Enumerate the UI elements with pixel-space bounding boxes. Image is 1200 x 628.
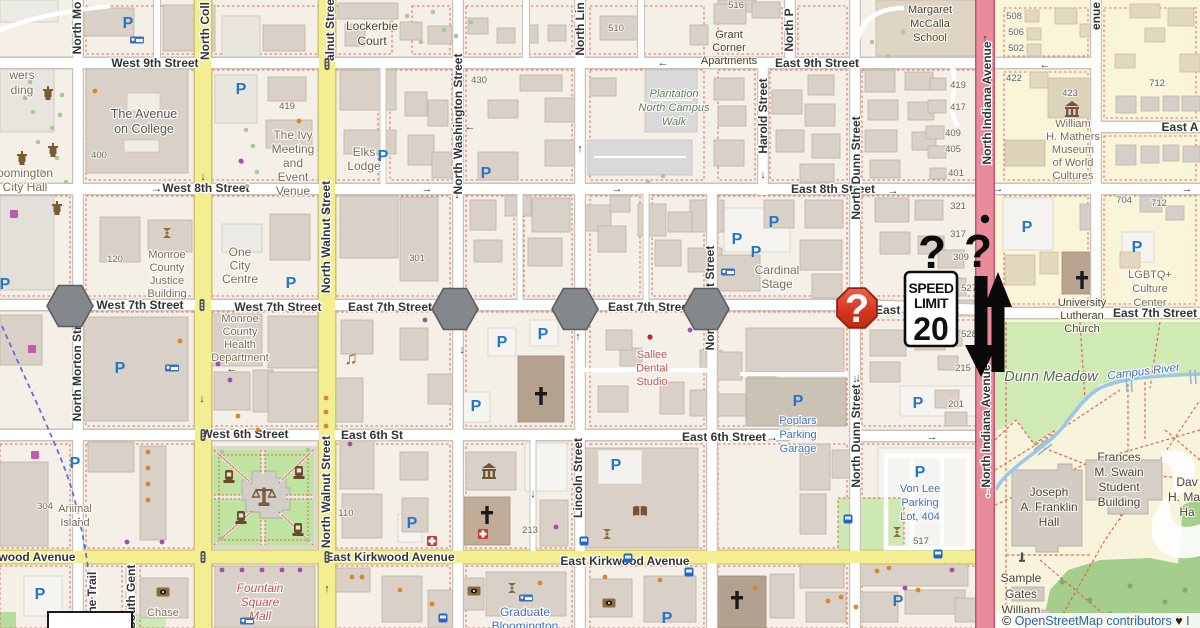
- svg-text:Lincoln Street: Lincoln Street: [571, 438, 585, 518]
- svg-text:Corner: Corner: [712, 42, 746, 54]
- svg-text:→: →: [927, 431, 938, 443]
- svg-text:Event: Event: [278, 170, 309, 184]
- svg-text:321: 321: [950, 201, 966, 212]
- svg-text:→West 8th Street: →West 8th Street: [150, 181, 249, 195]
- svg-text:North Coll: North Coll: [198, 2, 212, 60]
- svg-text:↑: ↑: [324, 583, 330, 595]
- svg-text:Lutheran: Lutheran: [1060, 310, 1103, 322]
- svg-text:P: P: [115, 360, 126, 377]
- svg-text:West 6th Street: West 6th Street: [201, 427, 288, 441]
- svg-text:516: 516: [728, 0, 744, 11]
- svg-text:Plantation: Plantation: [650, 88, 699, 100]
- svg-text:405: 405: [945, 144, 961, 155]
- svg-text:Studio: Studio: [636, 376, 667, 388]
- svg-text:of World: of World: [1053, 157, 1094, 169]
- svg-text:Lot, 404: Lot, 404: [900, 511, 940, 523]
- svg-text:→: →: [888, 185, 899, 197]
- svg-text:P: P: [732, 231, 743, 248]
- svg-text:P: P: [1022, 219, 1033, 236]
- svg-text:↓: ↓: [852, 373, 858, 385]
- svg-text:LGBTQ+: LGBTQ+: [1128, 269, 1172, 281]
- svg-text:Harold Street: Harold Street: [756, 78, 770, 153]
- svg-text:Margaret: Margaret: [908, 4, 952, 16]
- svg-text:H. Max: H. Max: [1168, 490, 1200, 504]
- svg-text:←: ←: [1040, 59, 1051, 71]
- svg-text:♫: ♫: [344, 348, 358, 368]
- svg-text:P: P: [35, 586, 46, 603]
- svg-text:301: 301: [409, 253, 425, 264]
- svg-text:Animal: Animal: [58, 503, 92, 515]
- svg-text:North P: North P: [782, 8, 796, 51]
- svg-text:Center: Center: [1133, 297, 1166, 309]
- svg-text:Stage: Stage: [761, 277, 793, 291]
- svg-text:North Walnut Street: North Walnut Street: [319, 436, 333, 548]
- svg-text:↑: ↑: [577, 143, 583, 155]
- svg-text:Cultures: Cultures: [1053, 170, 1094, 182]
- svg-text:SPEED: SPEED: [909, 280, 954, 296]
- svg-text:↑: ↑: [575, 331, 581, 343]
- svg-text:North Dunn Street←: North Dunn Street←: [849, 372, 863, 487]
- svg-text:Dental: Dental: [636, 363, 668, 375]
- svg-text:Von Lee: Von Lee: [900, 483, 940, 495]
- svg-text:M. Swain: M. Swain: [1094, 465, 1143, 479]
- svg-text:506: 506: [1008, 27, 1024, 38]
- svg-text:West 9th Street: West 9th Street: [111, 56, 198, 70]
- svg-text:City Hall: City Hall: [3, 180, 48, 194]
- svg-text:Museum: Museum: [1052, 144, 1094, 156]
- svg-text:County: County: [150, 262, 185, 274]
- svg-text:P: P: [471, 398, 482, 415]
- svg-text:LIMIT: LIMIT: [914, 295, 949, 311]
- svg-text:William: William: [1055, 118, 1090, 130]
- svg-text:517: 517: [913, 536, 929, 547]
- svg-text:Church: Church: [1064, 323, 1099, 335]
- svg-text:↓: ↓: [760, 169, 766, 181]
- svg-text:Poplars: Poplars: [779, 415, 817, 427]
- svg-text:120: 120: [107, 254, 123, 265]
- svg-text:Hall: Hall: [1039, 515, 1060, 529]
- svg-text:wood Avenue: wood Avenue: [0, 550, 76, 564]
- svg-text:East 7th Street: East 7th Street: [348, 300, 432, 314]
- svg-text:Graduate: Graduate: [500, 605, 550, 619]
- svg-text:Frances: Frances: [1097, 450, 1140, 464]
- svg-text:Lodge: Lodge: [347, 159, 381, 173]
- svg-text:P: P: [538, 326, 549, 343]
- svg-text:Lockerbie: Lockerbie: [346, 19, 398, 33]
- svg-text:North Campus: North Campus: [639, 102, 710, 114]
- svg-text:East 9th Street: East 9th Street: [775, 56, 859, 70]
- svg-text:20: 20: [913, 311, 949, 347]
- svg-text:Sallee: Sallee: [637, 349, 668, 361]
- svg-text:enue: enue: [1089, 2, 1103, 30]
- svg-text:P: P: [913, 395, 924, 412]
- svg-text:?: ?: [845, 287, 869, 331]
- svg-text:Meeting: Meeting: [272, 142, 315, 156]
- svg-text:Department: Department: [211, 352, 268, 364]
- svg-text:P: P: [497, 334, 508, 351]
- svg-text:712: 712: [1151, 198, 1167, 209]
- svg-text:P: P: [0, 276, 11, 293]
- svg-text:430: 430: [471, 75, 487, 86]
- svg-text:P: P: [611, 457, 622, 474]
- svg-text:201: 201: [948, 399, 964, 410]
- svg-text:P: P: [70, 455, 81, 472]
- svg-text:→: →: [422, 183, 433, 195]
- svg-text:↑: ↑: [982, 33, 988, 45]
- svg-text:↑: ↑: [324, 206, 330, 218]
- svg-text:409: 409: [945, 128, 961, 139]
- svg-text:Island: Island: [60, 517, 89, 529]
- svg-text:City: City: [230, 259, 251, 273]
- svg-text:P: P: [286, 275, 297, 292]
- svg-text:P: P: [751, 244, 762, 261]
- svg-text:P: P: [662, 610, 673, 627]
- svg-text:704: 704: [1116, 195, 1132, 206]
- svg-text:West 7th Street: West 7th Street: [96, 298, 183, 312]
- svg-text:Chase: Chase: [147, 607, 179, 619]
- svg-text:Elks: Elks: [353, 145, 376, 159]
- svg-text:East 7th Street: East 7th Street: [608, 300, 692, 314]
- svg-text:North Washington Street: North Washington Street: [451, 54, 465, 195]
- svg-text:Ha: Ha: [1179, 505, 1195, 519]
- svg-text:Cardinal: Cardinal: [755, 263, 800, 277]
- svg-text:Sample: Sample: [1001, 571, 1042, 585]
- svg-text:East 6th Street→: East 6th Street→: [682, 430, 778, 444]
- svg-text:←: ←: [658, 57, 669, 69]
- svg-text:↓: ↓: [530, 488, 536, 500]
- svg-text:↓: ↓: [454, 189, 460, 201]
- svg-text:P: P: [481, 165, 492, 182]
- svg-text:The Ivy: The Ivy: [273, 128, 312, 142]
- svg-text:P: P: [893, 593, 904, 610]
- svg-text:East 6th St: East 6th St: [341, 428, 403, 442]
- svg-text:West 7th Street: West 7th Street: [234, 300, 321, 314]
- svg-text:110: 110: [338, 508, 353, 519]
- svg-text:oomington: oomington: [0, 166, 53, 180]
- svg-text:Venue: Venue: [276, 184, 310, 198]
- svg-text:North Dunn Street: North Dunn Street: [849, 116, 863, 219]
- svg-text:←: ←: [465, 121, 476, 133]
- svg-text:P: P: [915, 464, 926, 481]
- svg-text:Garage: Garage: [780, 443, 817, 455]
- svg-text:502: 502: [1008, 43, 1024, 54]
- svg-text:Fountain: Fountain: [237, 581, 284, 595]
- svg-text:←: ←: [227, 363, 238, 375]
- svg-text:North Mo: North Mo: [70, 2, 84, 55]
- svg-text:East A: East A: [1162, 120, 1199, 134]
- svg-text:County: County: [223, 326, 258, 338]
- svg-text:McCalla: McCalla: [910, 18, 951, 30]
- svg-text:P: P: [123, 15, 134, 32]
- svg-text:School: School: [913, 32, 947, 44]
- svg-text:© OpenStreetMap contributors ♥: © OpenStreetMap contributors ♥ I: [1002, 614, 1190, 628]
- svg-text:Walk: Walk: [662, 116, 687, 128]
- svg-text:P: P: [793, 393, 804, 410]
- svg-text:The Avenue: The Avenue: [111, 107, 178, 121]
- svg-text:419: 419: [950, 80, 966, 91]
- svg-text:East Kirkwood Avenue: East Kirkwood Avenue: [325, 550, 454, 564]
- svg-text:Gates: Gates: [1005, 587, 1037, 601]
- svg-text:?: ?: [964, 225, 992, 277]
- svg-text:400: 400: [91, 150, 107, 161]
- svg-text:University: University: [1058, 297, 1107, 309]
- svg-text:P: P: [407, 515, 418, 532]
- svg-text:Dunn Meadow: Dunn Meadow: [1004, 369, 1099, 385]
- svg-text:North Morton Stre: North Morton Stre: [70, 318, 84, 421]
- svg-text:Monroe: Monroe: [148, 249, 185, 261]
- svg-text:One: One: [229, 245, 252, 259]
- svg-text:alnut Street: alnut Street: [323, 0, 337, 61]
- svg-text:→: →: [1182, 183, 1193, 195]
- svg-text:Monroe: Monroe: [221, 313, 258, 325]
- svg-text:Student: Student: [1098, 480, 1140, 494]
- svg-text:213: 213: [522, 525, 538, 536]
- svg-text:and: and: [283, 156, 303, 170]
- svg-text:Square: Square: [241, 595, 280, 609]
- svg-text:P: P: [1132, 239, 1143, 256]
- svg-text:←North Indiana Avenue: ←North Indiana Avenue: [979, 364, 993, 499]
- svg-text:423: 423: [1062, 88, 1078, 99]
- svg-text:North Lin: North Lin: [573, 2, 587, 55]
- svg-text:215: 215: [955, 363, 971, 374]
- svg-text:422: 422: [1006, 73, 1022, 84]
- svg-text:A. Franklin: A. Franklin: [1020, 500, 1077, 514]
- svg-text:417: 417: [950, 102, 966, 113]
- svg-text:H. Mathers: H. Mathers: [1046, 131, 1100, 143]
- svg-text:Joseph: Joseph: [1030, 485, 1069, 499]
- svg-text:Grant: Grant: [715, 29, 743, 41]
- svg-text:↓: ↓: [199, 393, 205, 405]
- svg-text:on College: on College: [114, 122, 174, 136]
- svg-text:Health: Health: [224, 339, 256, 351]
- svg-text:508: 508: [1006, 11, 1022, 22]
- svg-text:401: 401: [948, 168, 964, 179]
- svg-text:304: 304: [37, 501, 53, 512]
- svg-text:Court: Court: [357, 34, 387, 48]
- svg-text:P: P: [236, 81, 247, 98]
- svg-text:P: P: [378, 148, 389, 165]
- svg-text:Centre: Centre: [222, 272, 258, 286]
- svg-text:510: 510: [608, 23, 624, 34]
- svg-text:Dav: Dav: [1176, 475, 1197, 489]
- svg-text:712: 712: [1149, 78, 1165, 89]
- svg-text:Justice: Justice: [150, 275, 184, 287]
- svg-text:North Indiana Avenue: North Indiana Avenue: [980, 41, 994, 164]
- svg-text:ding: ding: [11, 83, 34, 97]
- svg-text:→: →: [750, 432, 761, 444]
- svg-text:Building: Building: [1098, 495, 1141, 509]
- svg-text:Building: Building: [147, 288, 186, 300]
- svg-text:→: →: [612, 183, 623, 195]
- svg-text:?: ?: [918, 226, 946, 278]
- svg-text:Bloomington: Bloomington: [492, 619, 559, 628]
- svg-text:Apartments: Apartments: [701, 55, 758, 67]
- svg-text:Culture: Culture: [1132, 283, 1167, 295]
- svg-text:↓: ↓: [459, 344, 465, 356]
- svg-text:North Walnut Street: North Walnut Street: [319, 181, 333, 293]
- svg-text:↓: ↓: [200, 171, 206, 183]
- svg-text:Parking: Parking: [779, 429, 816, 441]
- svg-text:→: →: [993, 183, 1004, 195]
- svg-text:419: 419: [279, 101, 295, 112]
- svg-text:P: P: [769, 214, 780, 231]
- svg-text:Parking: Parking: [901, 497, 938, 509]
